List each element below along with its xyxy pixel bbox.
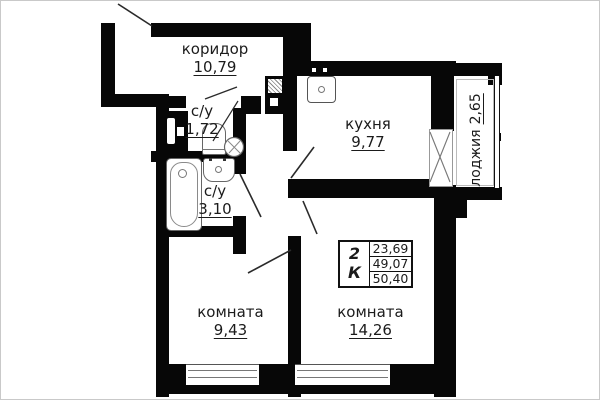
apartment-stamp-values: 23,69 49,07 50,40	[370, 242, 411, 286]
room-name: кухня	[319, 116, 417, 133]
washbasin-base	[202, 149, 226, 150]
floor-plan: коридор 10,79 с/у 1,72 кухня 9,77 с/у 3,…	[0, 0, 600, 400]
washbasin-drain	[215, 166, 222, 173]
window-room-1	[186, 364, 259, 385]
room-label-loggia: лоджия2,65	[459, 70, 493, 210]
apartment-stamp: 2 К 23,69 49,07 50,40	[338, 240, 413, 288]
room-label-room-2: комната 14,26	[313, 304, 428, 339]
room-area: 1,72	[173, 121, 231, 138]
stamp-living-area: 23,69	[370, 242, 411, 257]
room-1-door-line	[248, 250, 291, 273]
window-glass-line	[297, 370, 388, 371]
window-glass-line	[188, 377, 257, 378]
room-label-wc-small: с/у 1,72	[173, 103, 231, 138]
room-label-room-1: комната 9,43	[173, 304, 288, 339]
sink-tick	[323, 68, 327, 72]
kitchen-sink-icon	[307, 76, 336, 103]
wall-pier-left	[156, 364, 186, 384]
apartment-type-label: 2 К	[340, 242, 370, 286]
room-area: 9,43	[173, 322, 288, 339]
room-name: коридор	[159, 41, 271, 58]
room-name: комната	[313, 304, 428, 321]
wall-pier-right	[390, 364, 456, 384]
washbasin-tick	[223, 158, 226, 161]
room-area: 2,65	[468, 93, 484, 124]
vent-shaft-icon	[267, 78, 283, 94]
room-name: лоджия	[468, 129, 484, 186]
room-name: комната	[173, 304, 288, 321]
electrical-box-icon	[270, 98, 278, 106]
loggia-glazing	[494, 76, 500, 188]
room-area: 9,77	[319, 134, 417, 151]
room-label-kitchen: кухня 9,77	[319, 116, 417, 151]
washbasin-icon	[203, 158, 235, 182]
washbasin-tick	[209, 158, 212, 161]
wall-kitchen-left	[283, 37, 297, 151]
bathtub-drain	[178, 169, 187, 178]
sink-tick	[312, 68, 316, 72]
room-area: 14,26	[313, 322, 428, 339]
room-label-wc-large: с/у 3,10	[184, 183, 246, 218]
window-glass-line	[297, 377, 388, 378]
room-area: 10,79	[159, 59, 271, 76]
wc-small-door-line	[205, 87, 237, 99]
wall-bottom-band	[156, 384, 456, 394]
balcony-door-window	[429, 129, 453, 187]
wall-pier-middle	[259, 364, 295, 384]
stamp-area: 49,07	[370, 257, 411, 272]
faucet-dot	[318, 86, 325, 93]
window-glass-line	[188, 370, 257, 371]
room-2-door-line	[303, 201, 317, 234]
stamp-total-area: 50,40	[370, 272, 411, 286]
kitchen-door-line	[291, 147, 314, 178]
room-label-corridor: коридор 10,79	[159, 41, 271, 76]
wall-kitchen-bottom	[288, 179, 434, 198]
room-area: 3,10	[184, 201, 246, 218]
entrance-door-line	[118, 4, 152, 26]
room-name: с/у	[184, 183, 246, 200]
window-room-2	[295, 364, 390, 385]
room-name: с/у	[173, 103, 231, 120]
